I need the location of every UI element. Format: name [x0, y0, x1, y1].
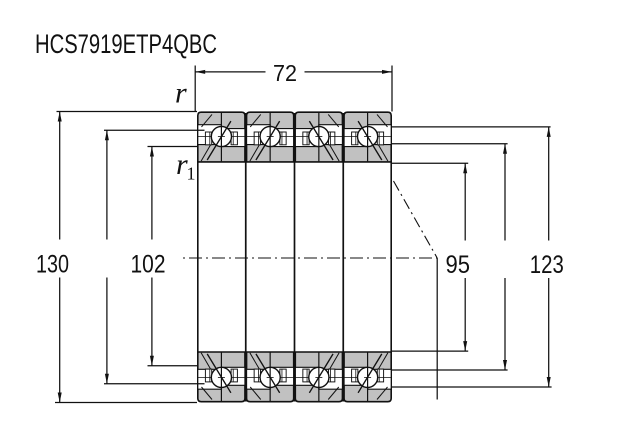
svg-text:102: 102 [131, 251, 166, 279]
svg-text:130: 130 [36, 251, 69, 279]
svg-text:r: r [175, 77, 187, 110]
svg-text:95: 95 [446, 251, 471, 279]
svg-text:1: 1 [187, 164, 196, 184]
svg-text:72: 72 [273, 60, 297, 86]
svg-text:123: 123 [530, 251, 564, 279]
svg-text:HCS7919ETP4QBC: HCS7919ETP4QBC [35, 29, 217, 59]
